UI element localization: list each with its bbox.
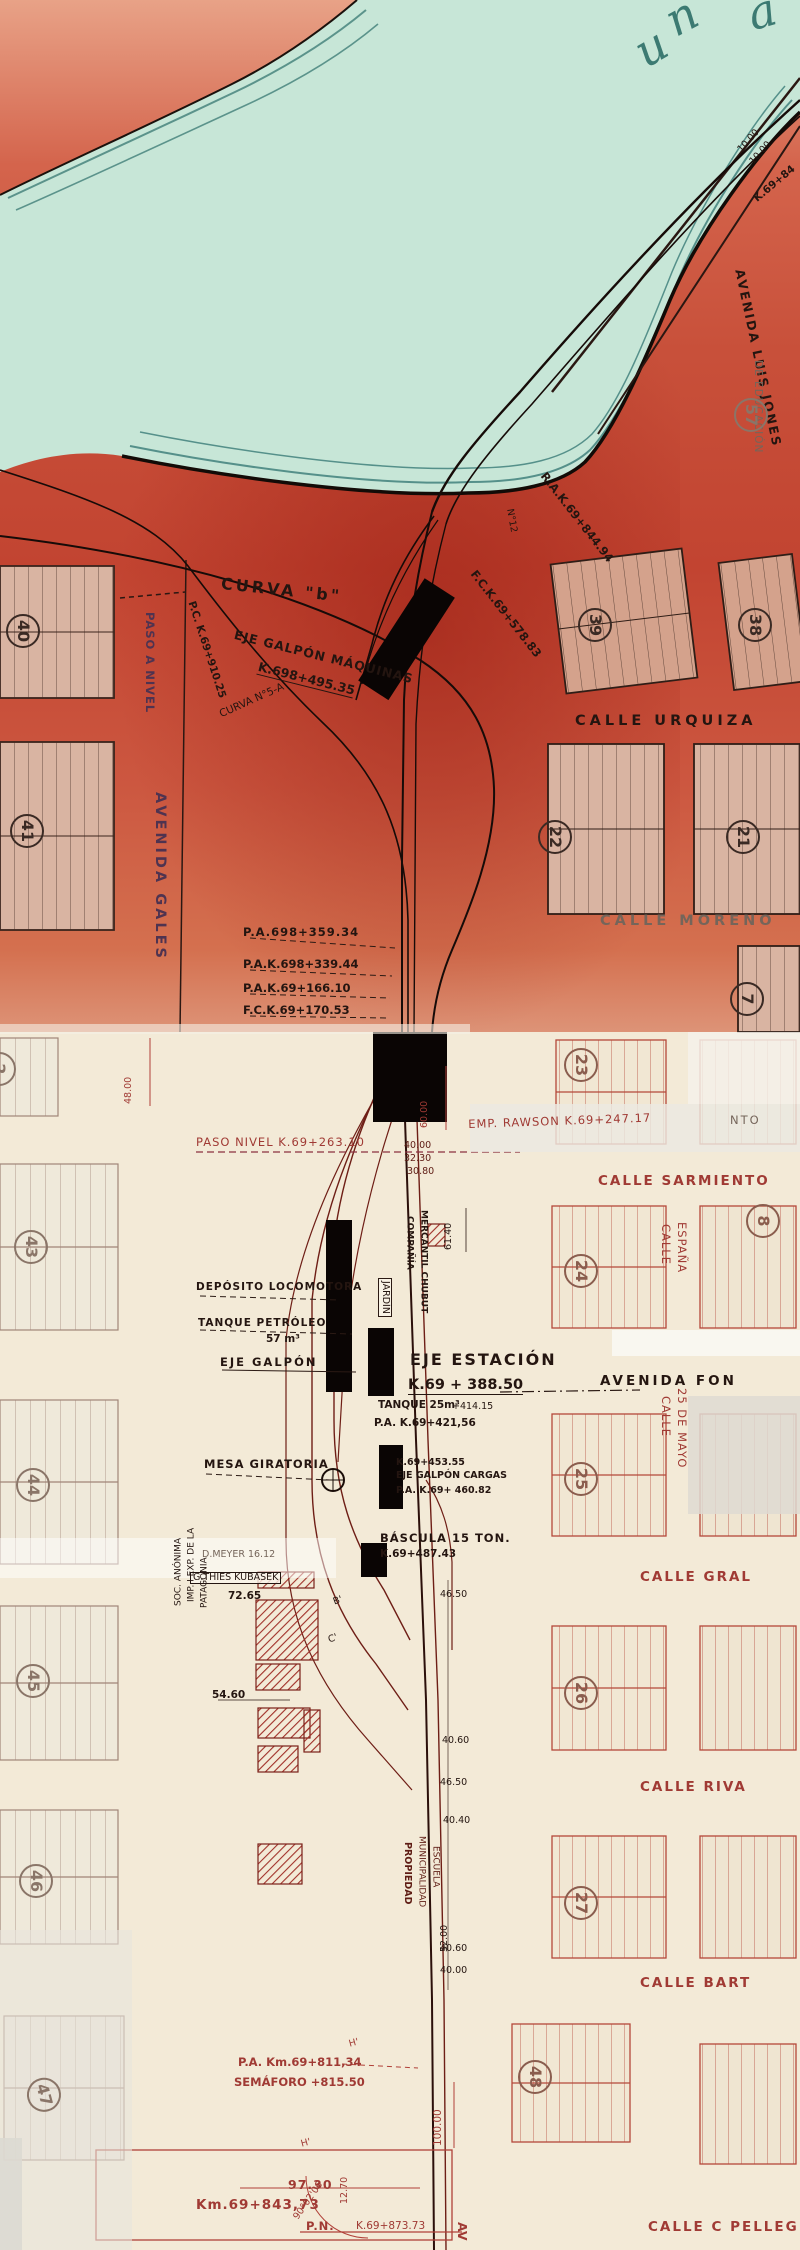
property-label: SOC. ANÓNIMA <box>175 1538 184 1606</box>
block-number: 44 <box>16 1468 50 1502</box>
km-marker: K.69+453.55 <box>396 1458 465 1468</box>
property-label: MUNICIPALIDAD <box>416 1836 425 1907</box>
annotation: PASO A NIVEL <box>144 612 156 713</box>
km-marker: P.A. K.69+421,56 <box>374 1418 476 1429</box>
track-point-label: H' <box>348 2037 360 2049</box>
km-marker: P.C. K.69+910.25 <box>186 600 228 700</box>
block-number: 43 <box>14 1230 48 1264</box>
property-label: D.MEYER 16.12 <box>202 1550 275 1560</box>
facility-label: BÁSCULA 15 TON. <box>380 1532 511 1544</box>
street-label: ESPAÑA <box>676 1222 688 1273</box>
scanned-map: una10.0010.00K.69+84AVENIDA LUIS JONESDE… <box>0 0 800 2250</box>
facility-label: DEPÓSITO LOCOMOTORA <box>196 1282 362 1293</box>
facility-label: EJE GALPÓN CARGAS <box>396 1471 507 1481</box>
km-marker: K.69+487.43 <box>380 1549 456 1560</box>
street-label: CALLE GRAL <box>640 1570 752 1584</box>
dimension-label: 40.60 <box>440 1944 467 1954</box>
property-label: IMP. I EXP. DE LA <box>188 1528 197 1602</box>
street-label: AVENIDA GALES <box>152 792 167 961</box>
km-marker: +414.15 <box>452 1402 493 1412</box>
dimension-label: 40.40 <box>443 1816 470 1826</box>
track-point-label: N°12 <box>504 508 518 533</box>
track-point-label: B' <box>332 1595 344 1607</box>
km-marker: SEMÁFORO +815.50 <box>234 2076 365 2088</box>
block-number: 45 <box>16 1664 50 1698</box>
block-number: 2 <box>0 1052 16 1086</box>
property-label: COMPAÑÍA <box>404 1216 413 1270</box>
street-label: CALLE BART <box>640 1976 751 1990</box>
km-marker: K.69+84 <box>752 164 798 205</box>
block-number: 41 <box>10 814 44 848</box>
km-marker: EMP. RAWSON K.69+247.17 <box>468 1112 651 1130</box>
km-marker: P.A. Km.69+811,34 <box>238 2056 361 2068</box>
dimension-label: 46.50 <box>440 1778 467 1788</box>
km-marker: F.C.K.69+170.53 <box>243 1004 350 1016</box>
annotation: CURVA N°5-A <box>218 682 286 720</box>
km-marker: F.C.K.69+578.83 <box>468 568 543 659</box>
street-label: CALLE <box>660 1224 672 1265</box>
km-marker: P.A.K.698+339.44 <box>243 958 358 970</box>
dimension-label: 60.00 <box>420 1101 430 1128</box>
dimension-label: 100.00 <box>433 2109 444 2146</box>
street-label: NTO <box>730 1114 761 1126</box>
block-number: 46 <box>19 1864 53 1898</box>
block-number: 22 <box>538 820 572 854</box>
dimension-label: 48.00 <box>124 1077 134 1104</box>
dimension-label: 40.00 <box>404 1141 431 1151</box>
street-label: CALLE RIVA <box>640 1780 747 1794</box>
dimension-label: 40.60 <box>442 1736 469 1746</box>
block-number: 47 <box>23 2074 65 2116</box>
block-number: 8 <box>746 1204 780 1238</box>
facility-label: MESA GIRATORIA <box>204 1458 329 1470</box>
km-marker: K.69 + 388.50 <box>408 1378 523 1395</box>
annotation: CURVA "b" <box>220 576 343 605</box>
block-number: 48 <box>518 2060 552 2094</box>
block-number: 38 <box>738 608 772 642</box>
block-number: 57 <box>734 398 768 432</box>
block-number: 23 <box>564 1048 598 1082</box>
km-marker: P.A. K.69+ 460.82 <box>396 1486 491 1496</box>
facility-label: 57 m³ <box>266 1334 300 1345</box>
dimension-label: 54.60 <box>212 1690 245 1701</box>
property-label: PROPIEDAD <box>402 1842 412 1904</box>
km-marker: Km.69+843,73 <box>196 2198 320 2212</box>
dimension-label: 72.65 <box>228 1591 261 1602</box>
facility-label: TANQUE PETRÓLEO <box>198 1318 326 1329</box>
km-marker: PASO NIVEL K.69+263.10 <box>196 1136 365 1148</box>
block-number: 40 <box>6 614 40 648</box>
dimension-label: 12.70 <box>340 2177 350 2204</box>
track-point-label: H' <box>300 2137 312 2149</box>
facility-label: JARDÍN <box>378 1278 392 1317</box>
street-label: CALLE URQUIZA <box>575 714 756 729</box>
water-name-letter: n <box>657 0 706 45</box>
block-number: 7 <box>730 982 764 1016</box>
street-label: CALLE SARMIENTO <box>598 1174 770 1188</box>
street-label: 25 DE MAYO <box>676 1388 688 1468</box>
km-marker: R.A.K.69+844.94 <box>538 470 615 564</box>
street-label: CALLE MORENO <box>600 914 776 929</box>
property-label: ESCUELA <box>430 1846 439 1887</box>
water-name-letter: u <box>626 19 676 76</box>
facility-label: TANQUE 25m³ <box>378 1400 460 1411</box>
block-number: 24 <box>564 1254 598 1288</box>
dimension-label: 40.00 <box>440 1966 467 1976</box>
water-name-letter: a <box>742 0 782 38</box>
street-label: AV <box>456 2222 469 2241</box>
dimension-label: 32.30 <box>404 1154 431 1164</box>
km-marker: P.A.K.69+166.10 <box>243 982 350 994</box>
street-label: CALLE <box>660 1396 672 1437</box>
street-label: AVENIDA FON <box>600 1374 737 1388</box>
street-label: CALLE C PELLEG <box>648 2220 799 2234</box>
block-number: 25 <box>564 1462 598 1496</box>
property-label: PATAGONIA <box>201 1557 210 1608</box>
facility-label: EJE GALPÓN <box>220 1356 318 1368</box>
property-label: MERCANTIL CHUBUT <box>418 1210 427 1313</box>
km-marker: P.A.698+359.34 <box>243 926 359 938</box>
block-number: 39 <box>578 608 612 642</box>
dimension-label: 30.80 <box>407 1167 434 1177</box>
track-point-label: C' <box>327 1633 339 1646</box>
dimension-label: 46.50 <box>440 1590 467 1600</box>
annotation: P.N. <box>306 2220 335 2232</box>
km-marker: K.69+873.73 <box>356 2221 425 2232</box>
block-number: 27 <box>564 1886 598 1920</box>
block-number: 21 <box>726 820 760 854</box>
labels-layer: una10.0010.00K.69+84AVENIDA LUIS JONESDE… <box>0 0 800 2250</box>
facility-label: EJE ESTACIÓN <box>410 1352 557 1369</box>
block-number: 26 <box>564 1676 598 1710</box>
dimension-label: 61.40 <box>444 1223 454 1250</box>
